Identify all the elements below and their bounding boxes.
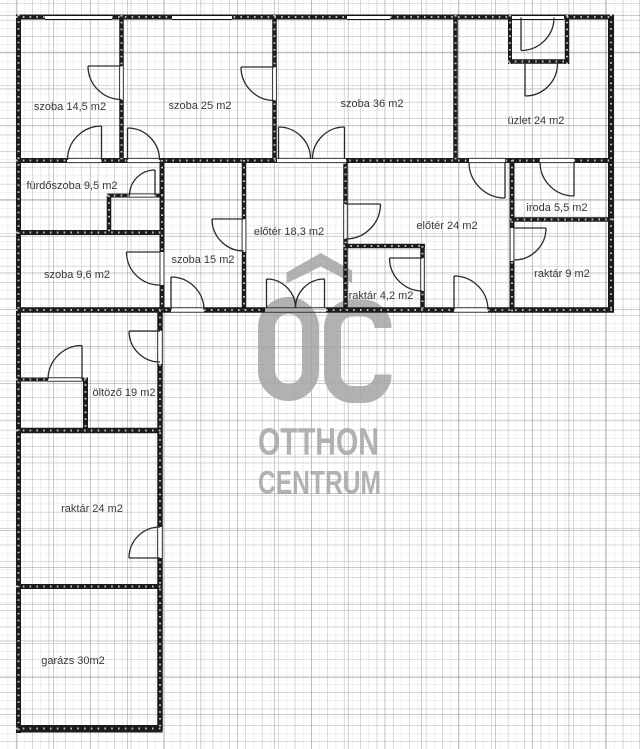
svg-text:szoba 25 m2: szoba 25 m2: [169, 100, 232, 112]
svg-text:üzlet 24 m2: üzlet 24 m2: [508, 115, 565, 127]
svg-text:raktár 4,2 m2: raktár 4,2 m2: [349, 290, 414, 302]
svg-text:szoba 9,6 m2: szoba 9,6 m2: [44, 269, 110, 281]
svg-text:OTTHON: OTTHON: [258, 422, 379, 464]
svg-text:szoba 36 m2: szoba 36 m2: [341, 98, 404, 110]
svg-text:öltöző 19 m2: öltöző 19 m2: [93, 387, 156, 399]
svg-text:fürdőszoba 9,5 m2: fürdőszoba 9,5 m2: [26, 180, 117, 192]
svg-text:iroda 5,5 m2: iroda 5,5 m2: [526, 202, 587, 214]
svg-text:előtér 24 m2: előtér 24 m2: [416, 220, 477, 232]
svg-text:raktár 9 m2: raktár 9 m2: [534, 268, 590, 280]
svg-text:előtér 18,3 m2: előtér 18,3 m2: [254, 226, 324, 238]
svg-text:szoba 15 m2: szoba 15 m2: [172, 254, 235, 266]
svg-text:CENTRUM: CENTRUM: [258, 465, 381, 501]
svg-text:raktár 24 m2: raktár 24 m2: [61, 503, 123, 515]
svg-text:szoba 14,5 m2: szoba 14,5 m2: [34, 101, 106, 113]
svg-text:garázs 30m2: garázs 30m2: [41, 655, 105, 667]
